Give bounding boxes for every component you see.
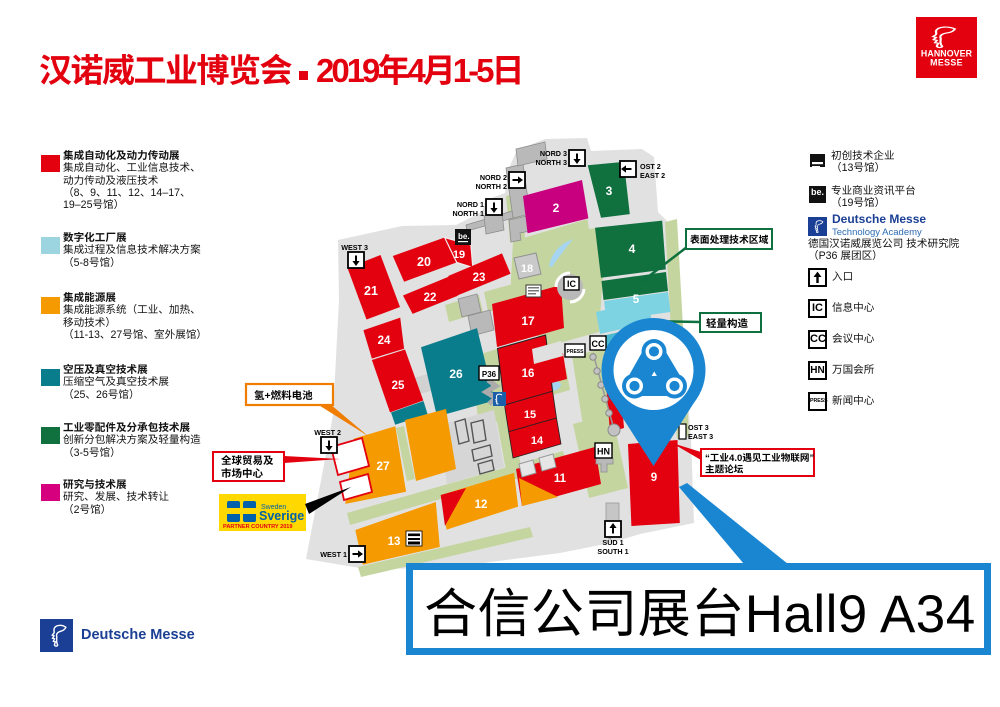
- svg-text:WEST 1: WEST 1: [320, 550, 347, 560]
- svg-text:21: 21: [364, 280, 378, 299]
- svg-text:EAST 2: EAST 2: [640, 171, 665, 181]
- svg-text:NORTH 2: NORTH 2: [475, 182, 507, 192]
- svg-text:SOUTH 1: SOUTH 1: [597, 547, 628, 557]
- svg-text:22: 22: [424, 289, 437, 305]
- svg-text:26: 26: [449, 365, 463, 382]
- svg-text:27: 27: [376, 457, 390, 474]
- svg-text:NORTH 1: NORTH 1: [452, 209, 484, 219]
- svg-text:3: 3: [606, 182, 613, 199]
- svg-text:14: 14: [531, 432, 544, 448]
- svg-text:25: 25: [392, 377, 405, 393]
- svg-text:20: 20: [417, 251, 431, 270]
- svg-text:轻量构造: 轻量构造: [706, 316, 748, 331]
- svg-text:IC: IC: [567, 277, 577, 290]
- svg-text:16: 16: [522, 365, 535, 381]
- svg-text:23: 23: [473, 269, 486, 285]
- svg-text:24: 24: [378, 332, 391, 348]
- svg-text:EAST 3: EAST 3: [688, 432, 713, 442]
- svg-text:4: 4: [629, 240, 636, 257]
- svg-text:表面处理技术区域: 表面处理技术区域: [690, 232, 769, 246]
- svg-text:HN: HN: [597, 445, 610, 458]
- svg-text:17: 17: [521, 312, 535, 329]
- svg-text:PRESS: PRESS: [567, 348, 585, 355]
- svg-text:5: 5: [633, 291, 640, 307]
- svg-text:11: 11: [554, 470, 567, 486]
- svg-text:市场中心: 市场中心: [221, 466, 263, 481]
- svg-text:19: 19: [453, 246, 465, 262]
- svg-text:NORTH 3: NORTH 3: [535, 158, 567, 168]
- svg-text:CC: CC: [592, 337, 605, 350]
- svg-text:9: 9: [651, 469, 657, 485]
- svg-text:PARTNER COUNTRY 2019: PARTNER COUNTRY 2019: [223, 522, 293, 530]
- svg-text:2: 2: [553, 199, 560, 216]
- svg-text:15: 15: [524, 406, 536, 422]
- svg-text:氢+燃料电池: 氢+燃料电池: [254, 388, 313, 403]
- svg-text:12: 12: [475, 496, 488, 512]
- svg-text:18: 18: [521, 260, 533, 276]
- svg-text:P36: P36: [482, 369, 497, 380]
- svg-text:13: 13: [388, 533, 401, 549]
- svg-text:主题论坛: 主题论坛: [705, 462, 744, 476]
- svg-text:be.: be.: [458, 231, 470, 242]
